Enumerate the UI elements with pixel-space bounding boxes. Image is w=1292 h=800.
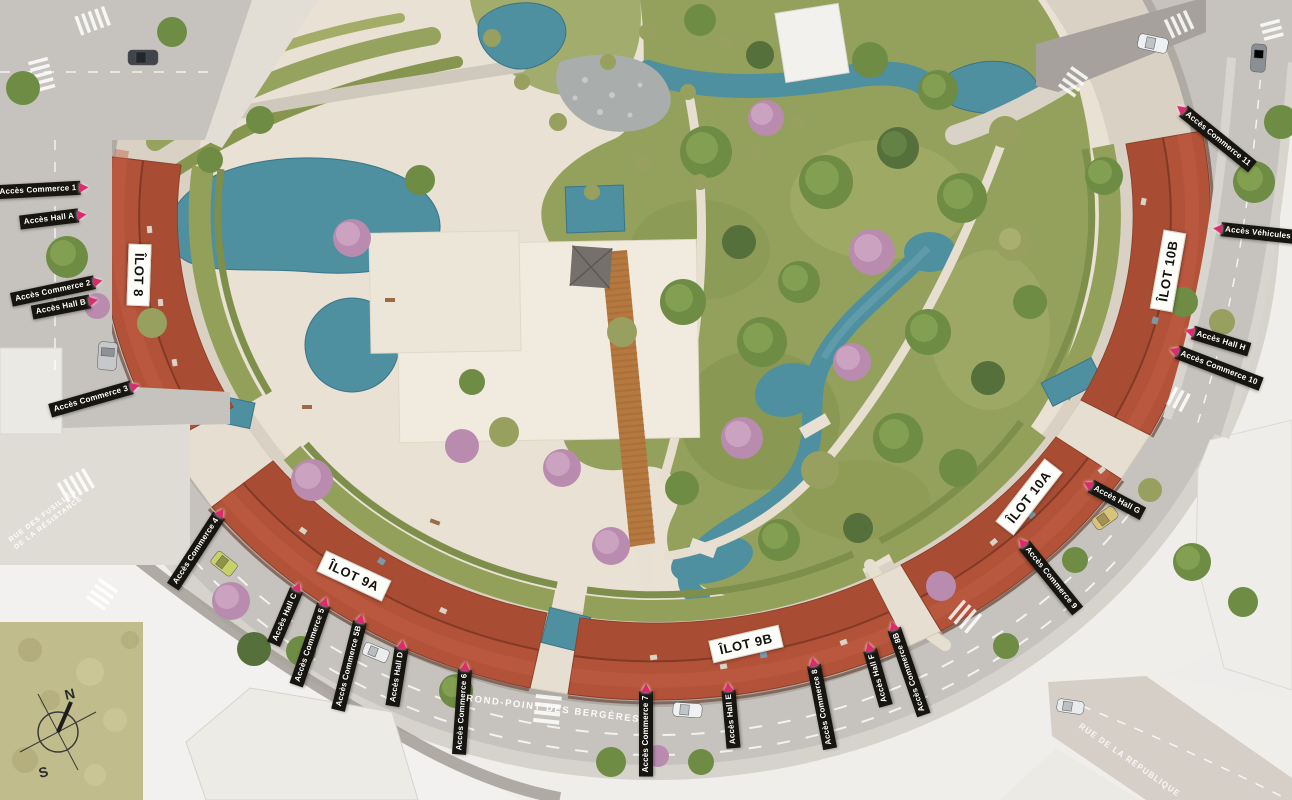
- building-plot-west: [0, 348, 62, 434]
- direction-arrow-icon: [460, 661, 471, 671]
- direction-arrow-icon: [1184, 325, 1196, 337]
- access-label-commerce-7: Accès Commerce 7: [639, 691, 653, 776]
- direction-arrow-icon: [355, 613, 367, 624]
- direction-arrow-icon: [88, 295, 99, 307]
- direction-arrow-icon: [397, 639, 408, 649]
- access-label-text: Accès Commerce 6: [454, 673, 468, 750]
- block-label-ilot-8: ÎLOT 8: [126, 244, 151, 307]
- access-label-text: Accès Hall E: [724, 694, 737, 745]
- building-cube: [775, 3, 849, 82]
- direction-arrow-icon: [93, 276, 104, 288]
- access-label-text: Accès Commerce 7: [641, 695, 650, 772]
- direction-arrow-icon: [807, 656, 819, 667]
- site-plan: N S: [0, 0, 1292, 800]
- direction-arrow-icon: [863, 641, 875, 652]
- direction-arrow-icon: [723, 681, 734, 691]
- access-label-text: Accès Commerce 1: [0, 183, 77, 196]
- direction-arrow-icon: [1213, 223, 1223, 234]
- access-label-text: Accès Hall A: [23, 211, 74, 226]
- direction-arrow-icon: [641, 683, 651, 692]
- direction-arrow-icon: [76, 209, 86, 220]
- site-plan-rendering: N S: [0, 0, 1292, 800]
- direction-arrow-icon: [79, 182, 89, 192]
